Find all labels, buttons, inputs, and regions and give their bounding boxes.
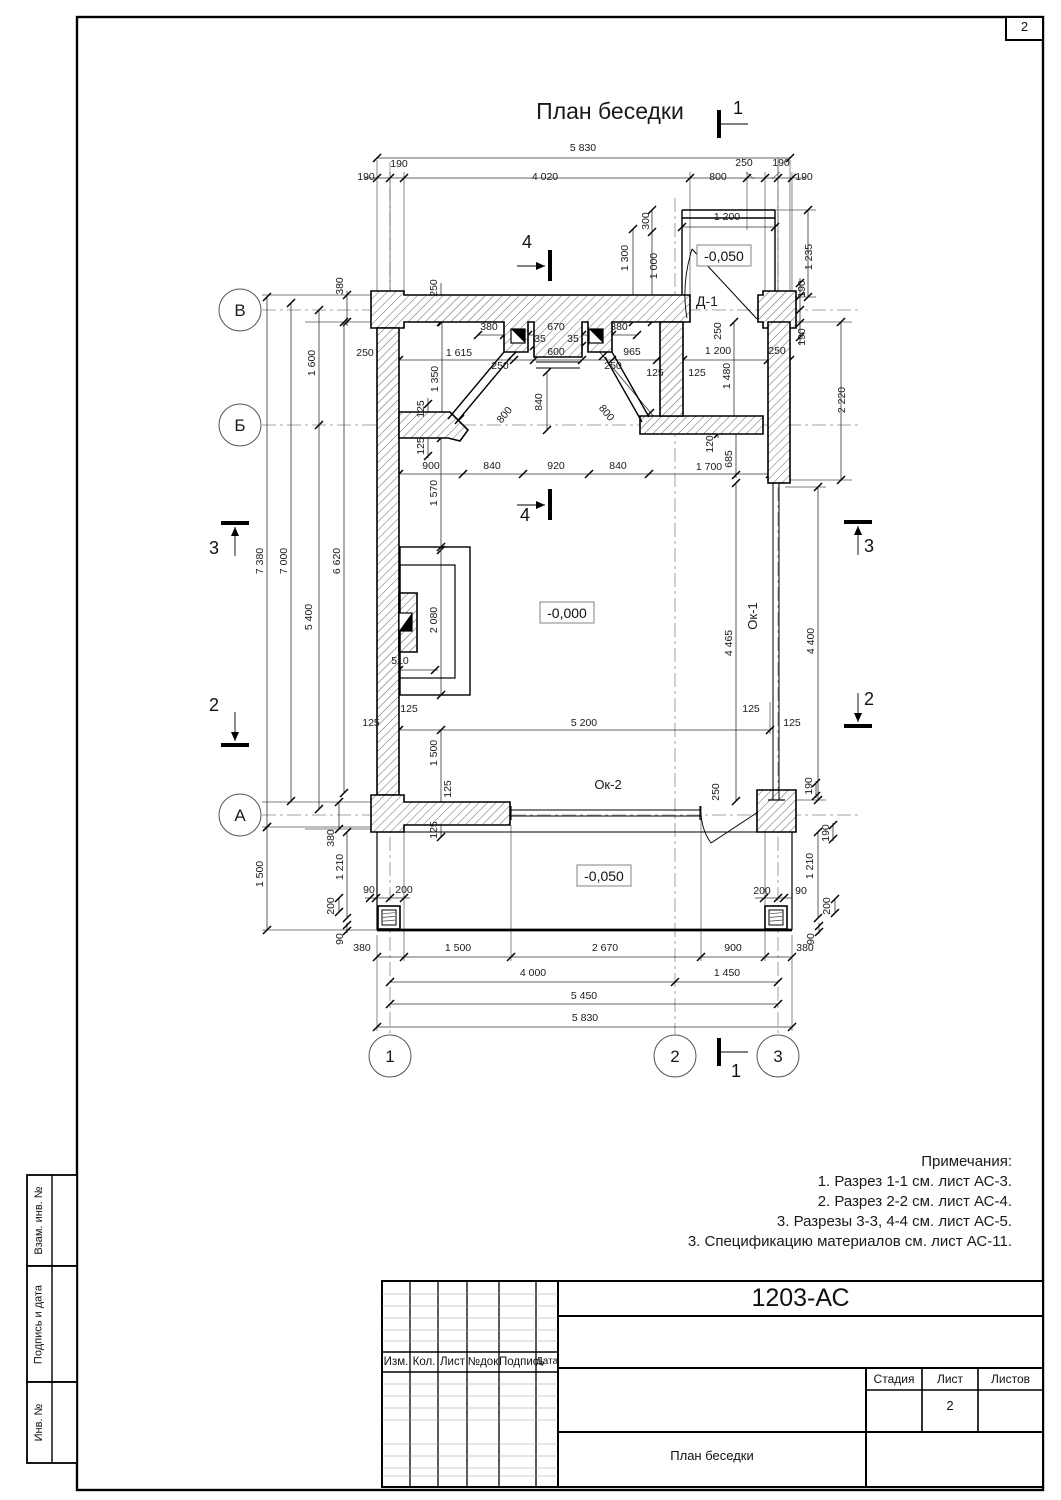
dim-label: 190 <box>390 158 408 170</box>
dim-label: 125 <box>442 780 454 798</box>
dim-label: 380 <box>610 321 628 333</box>
dim-label: 900 <box>422 460 440 472</box>
elevation-value: -0,050 <box>704 248 744 264</box>
elevation-value: -0,050 <box>584 868 624 884</box>
elevation-value: -0,000 <box>547 605 587 621</box>
dim-label: 90 <box>795 885 807 897</box>
dim-label: 5 400 <box>303 604 315 630</box>
dim-label: 125 <box>400 703 418 715</box>
dim-label: 125 <box>646 367 664 379</box>
dim-label: 1 615 <box>446 347 472 359</box>
dim-label: 125 <box>415 437 427 455</box>
dim-label: 670 <box>547 321 565 333</box>
dim-label: 190 <box>795 171 813 183</box>
dim-label: 1 350 <box>429 366 441 392</box>
dim-label: 125 <box>783 717 801 729</box>
dim-label: 5 450 <box>571 990 597 1002</box>
dim-label: 840 <box>609 460 627 472</box>
axis-label: Б <box>234 416 245 435</box>
dim-label: 1 000 <box>648 253 660 279</box>
dim-label: Д-1 <box>696 293 718 309</box>
dim-label: 965 <box>623 346 641 358</box>
dim-label: 600 <box>547 346 565 358</box>
dim-label: 300 <box>640 212 652 230</box>
page-number: 2 <box>1006 19 1043 39</box>
axis-label: А <box>234 806 246 825</box>
dim-label: 380 <box>796 942 814 954</box>
dim-label: 4 000 <box>520 967 546 979</box>
dim-label: 1 500 <box>428 740 440 766</box>
dim-label: 1 210 <box>334 854 346 880</box>
dim-label: 1 480 <box>721 363 733 389</box>
dim-label: 250 <box>356 347 374 359</box>
axis-label: 1 <box>385 1047 394 1066</box>
tb-sheet-label: Лист <box>922 1371 978 1387</box>
tb-col-list: Лист <box>438 1354 467 1370</box>
dim-label: 90 <box>334 933 346 945</box>
extension-lines <box>262 158 852 1031</box>
dim-label: 5 830 <box>570 142 596 154</box>
dim-label: 125 <box>428 821 440 839</box>
tb-col-podpis: Подпись <box>499 1354 536 1370</box>
dim-label: 800 <box>494 404 515 425</box>
tb-col-izm: Изм. <box>382 1354 410 1370</box>
dim-label: 5 830 <box>572 1012 598 1024</box>
dim-label: 1 500 <box>445 942 471 954</box>
section-marks: 11443232 <box>209 98 874 1081</box>
dim-label: 1 600 <box>306 350 318 376</box>
dim-label: 6 620 <box>331 548 343 574</box>
dim-label: 190 <box>796 280 808 298</box>
dim-label: 190 <box>803 777 815 795</box>
dim-label: 2 670 <box>592 942 618 954</box>
dim-label: 250 <box>428 279 440 297</box>
document-number: 1203-АС <box>558 1283 1043 1313</box>
note-line: 3. Спецификацию материалов см. лист АС-1… <box>688 1232 1012 1252</box>
dim-label: 840 <box>533 393 545 411</box>
dim-label: 4 465 <box>723 630 735 656</box>
dim-label: 1 200 <box>714 211 740 223</box>
dim-label: 35 <box>567 333 579 345</box>
dim-label: Ок-2 <box>594 777 621 792</box>
dim-label: 380 <box>334 277 346 295</box>
axis-label: 3 <box>773 1047 782 1066</box>
dim-label: 1 235 <box>803 244 815 270</box>
axis-label: 2 <box>670 1047 679 1066</box>
dim-label: 1 300 <box>619 245 631 271</box>
dim-label: 2 080 <box>428 607 440 633</box>
dim-label: 7 000 <box>278 548 290 574</box>
dim-label: 2 220 <box>836 387 848 413</box>
dim-label: 380 <box>480 321 498 333</box>
dim-label: 510 <box>391 655 409 667</box>
section-label: 4 <box>520 505 530 525</box>
dim-label: 250 <box>710 783 722 801</box>
dim-label: 1 500 <box>254 861 266 887</box>
axis-label: В <box>234 301 245 320</box>
dim-label: 125 <box>415 400 427 418</box>
dim-label: 380 <box>353 942 371 954</box>
dim-label: 7 380 <box>254 548 266 574</box>
dim-label: 200 <box>821 897 833 915</box>
section-label: 4 <box>522 232 532 252</box>
dim-label: 200 <box>395 884 413 896</box>
dim-label: 125 <box>688 367 706 379</box>
dim-label: 250 <box>712 322 724 340</box>
dim-label: 250 <box>604 360 622 372</box>
dim-label: 1 700 <box>696 461 722 473</box>
dim-label: 250 <box>735 157 753 169</box>
dim-label: 4 020 <box>532 171 558 183</box>
tb-sheets-label: Листов <box>978 1371 1043 1387</box>
tb-col-data: Дата <box>536 1354 558 1370</box>
note-line: 1. Разрез 1-1 см. лист АС-3. <box>688 1172 1012 1192</box>
dim-label: 1 200 <box>705 345 731 357</box>
dim-label: 200 <box>753 885 771 897</box>
section-label: 2 <box>864 689 874 709</box>
stamp-vzam-inv: Взам. инв. № <box>27 1175 52 1266</box>
gazebo-plan-drawing: 11443232 5 8301901904 0208002501901901 2… <box>0 0 1061 1500</box>
sheet-frame <box>27 17 1043 1490</box>
dim-label: 5 200 <box>571 717 597 729</box>
dim-label: 1 210 <box>804 853 816 879</box>
dim-label: 920 <box>547 460 565 472</box>
dim-label: 190 <box>796 328 808 346</box>
section-label: 3 <box>864 536 874 556</box>
notes-heading: Примечания: <box>688 1152 1012 1172</box>
tb-sheet-value: 2 <box>922 1398 978 1418</box>
dim-label: 1 570 <box>428 480 440 506</box>
tb-col-ndok: №док <box>467 1354 499 1370</box>
dim-label: Ок-1 <box>745 602 760 629</box>
dim-label: 190 <box>772 157 790 169</box>
page-title: План беседки <box>470 98 750 125</box>
dim-label: 800 <box>596 403 617 424</box>
dim-label: 250 <box>491 360 509 372</box>
dim-label: 4 400 <box>805 628 817 654</box>
dimension-lines <box>263 154 845 1031</box>
tb-drawing-name: План беседки <box>558 1448 866 1468</box>
dim-label: 90 <box>363 884 375 896</box>
tb-col-kol: Кол. <box>410 1354 438 1370</box>
stamp-inv: Инв. № <box>27 1382 52 1463</box>
section-label: 1 <box>731 1061 741 1081</box>
dim-label: 35 <box>534 333 546 345</box>
dim-label: 125 <box>362 717 380 729</box>
dim-label: 120 <box>704 435 716 453</box>
dim-label: 800 <box>709 171 727 183</box>
dim-label: 1 450 <box>714 967 740 979</box>
dim-label: 900 <box>724 942 742 954</box>
notes-block: Примечания: 1. Разрез 1-1 см. лист АС-3.… <box>688 1152 1012 1252</box>
dim-label: 200 <box>325 897 337 915</box>
note-line: 2. Разрез 2-2 см. лист АС-4. <box>688 1192 1012 1212</box>
dim-label: 190 <box>357 171 375 183</box>
notes-items: 1. Разрез 1-1 см. лист АС-3.2. Разрез 2-… <box>688 1172 1012 1252</box>
dim-label: 380 <box>325 829 337 847</box>
section-label: 2 <box>209 695 219 715</box>
dim-label: 250 <box>768 345 786 357</box>
tb-stage-label: Стадия <box>866 1371 922 1387</box>
drawing-sheet: 11443232 5 8301901904 0208002501901901 2… <box>0 0 1061 1500</box>
dim-label: 840 <box>483 460 501 472</box>
section-label: 3 <box>209 538 219 558</box>
dim-label: 190 <box>820 824 832 842</box>
dim-label: 685 <box>723 450 735 468</box>
stamp-podpis-data: Подпись и дата <box>27 1267 52 1383</box>
dim-label: 125 <box>742 703 760 715</box>
note-line: 3. Разрезы 3-3, 4-4 см. лист АС-5. <box>688 1212 1012 1232</box>
